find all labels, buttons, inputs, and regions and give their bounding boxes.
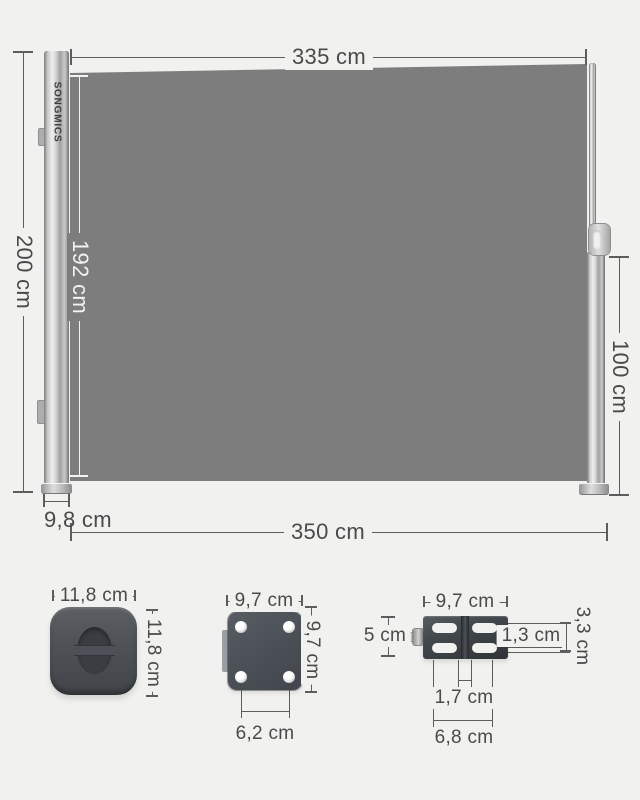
dim-tick: [609, 256, 629, 258]
dim-line-hole-spacing: [241, 711, 290, 712]
bracket-slot: [432, 643, 457, 653]
dim-ext-line: [289, 686, 290, 718]
dim-tick: [52, 590, 54, 601]
dim-tick: [226, 595, 228, 606]
dim-label-slot-span: 3,3 cm: [571, 602, 593, 671]
dim-line-slot-span: [566, 623, 567, 652]
product-dimension-diagram: SONGMICS 335 cm 200 cm 192 cm 100 cm 9,8…: [0, 0, 640, 800]
dim-tick: [381, 655, 395, 657]
dim-ext-line: [241, 686, 242, 718]
dim-label-outer-width: 6,8 cm: [430, 727, 499, 749]
pull-handle: [589, 224, 610, 255]
dim-line-98: [43, 501, 70, 502]
dim-tick: [381, 616, 395, 618]
dim-label-bracket-width: 9,7 cm: [431, 591, 500, 613]
dim-line-outer-width: [433, 720, 493, 721]
pull-handle-hole: [593, 230, 601, 249]
right-pole-foot: [579, 483, 609, 495]
dim-tick: [606, 523, 608, 541]
dim-tick: [609, 494, 629, 496]
bracket-slot: [472, 643, 497, 653]
dim-label-pole-height: 100 cm: [607, 333, 633, 421]
dim-tick: [305, 691, 317, 693]
dim-tick: [43, 494, 45, 507]
awning-fabric: [70, 64, 587, 481]
bracket-slot: [432, 623, 457, 633]
dim-tick: [70, 75, 88, 77]
plate-screw-hole: [235, 621, 247, 633]
right-top-rod: [589, 63, 596, 226]
dim-label-top-width: 335 cm: [285, 44, 373, 70]
plate-screw-hole: [283, 671, 295, 683]
dim-label-slot-height: 1,3 cm: [497, 625, 566, 647]
dim-label-plate-height: 9,7 cm: [301, 616, 323, 685]
dim-tick: [146, 609, 158, 611]
dim-label-total-width: 350 cm: [284, 519, 372, 545]
bracket-screw-head: [413, 629, 423, 645]
dim-tick: [305, 606, 317, 608]
dim-label-cap-width: 11,8 cm: [55, 585, 133, 607]
dim-tick: [70, 49, 72, 65]
dim-label-slot-gap: 1,7 cm: [430, 687, 499, 709]
bracket-center-fold: [461, 616, 469, 659]
dim-ext-line: [458, 660, 459, 688]
dim-label-cap-height: 11,8 cm: [142, 614, 164, 692]
dim-tick: [423, 596, 425, 607]
dim-tick: [585, 49, 587, 65]
dim-tick: [301, 595, 303, 606]
dim-tick: [13, 491, 33, 493]
brand-logo: SONGMICS: [52, 82, 63, 143]
dim-label-bracket-height: 5 cm: [359, 625, 411, 647]
dim-line-slot-gap: [458, 680, 472, 681]
left-pole-foot: [41, 483, 72, 494]
dim-leader-line: [508, 652, 570, 653]
dim-tick: [134, 590, 136, 601]
right-pull-pole: [587, 252, 605, 483]
dim-tick: [68, 494, 70, 507]
dim-label-cassette-depth: 9,8 cm: [44, 507, 112, 533]
end-cap: [50, 607, 137, 695]
end-cap-slot-bar: [74, 645, 115, 656]
dim-tick: [70, 475, 88, 477]
dim-label-hole-spacing: 6,2 cm: [231, 723, 300, 745]
bracket-slot: [472, 623, 497, 633]
plate-screw-hole: [283, 621, 295, 633]
dim-label-total-height: 200 cm: [11, 228, 37, 316]
dim-tick: [146, 695, 158, 697]
plate-screw-hole: [235, 671, 247, 683]
dim-label-plate-width: 9,7 cm: [230, 590, 299, 612]
dim-leader-line: [506, 647, 562, 648]
dim-label-fabric-height: 192 cm: [67, 233, 93, 321]
dim-ext-line: [471, 660, 472, 688]
dim-tick: [13, 51, 33, 53]
dim-tick: [506, 596, 508, 607]
